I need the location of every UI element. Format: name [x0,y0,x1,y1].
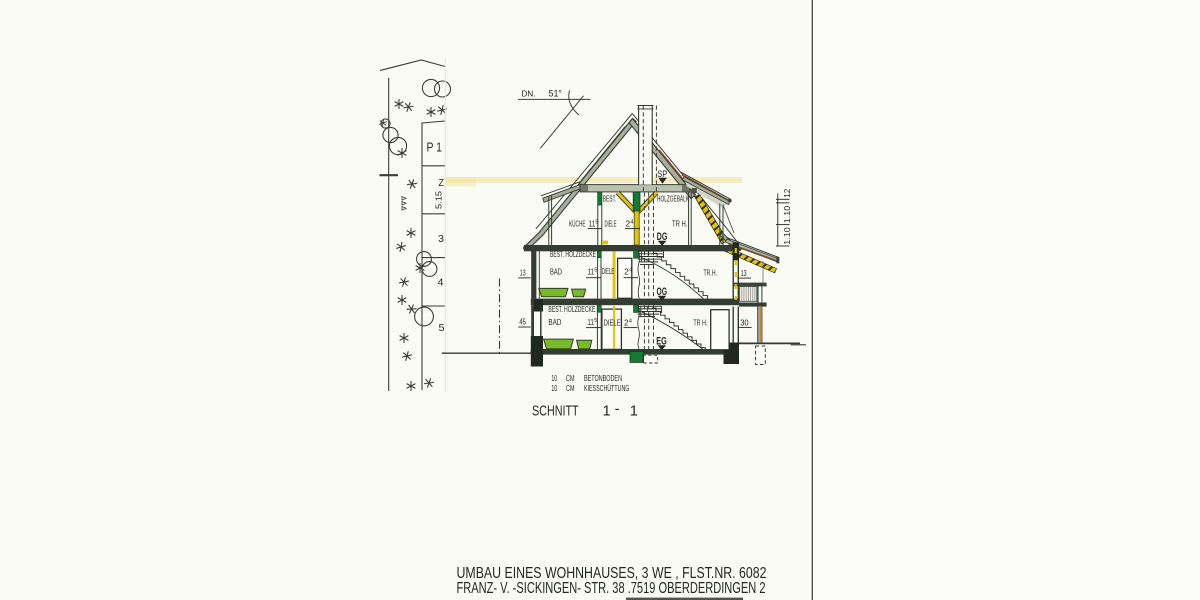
svg-text:30: 30 [740,318,749,328]
svg-text:45: 45 [519,317,526,327]
svg-text:FRANZ- V. -SICKINGEN- STR. 38: FRANZ- V. -SICKINGEN- STR. 38 .7519 OBER… [457,580,766,597]
svg-text:CM: CM [566,374,575,383]
svg-text:SCHNITT: SCHNITT [532,403,579,419]
svg-text:12: 12 [783,188,792,198]
svg-text:CM: CM [566,384,575,393]
svg-text:BEST.: BEST. [603,194,617,203]
svg-text:1: 1 [603,403,611,419]
svg-text:1: 1 [630,403,638,419]
svg-text:5: 5 [595,220,598,226]
svg-text:P 1: P 1 [427,141,443,155]
svg-text:51°: 51° [549,88,563,98]
svg-text:BEST. HOLZDECKE: BEST. HOLZDECKE [550,250,596,259]
svg-text:5: 5 [594,267,597,273]
svg-text:1.10: 1.10 [783,227,792,245]
svg-text:DN.: DN. [522,88,536,98]
svg-text:BAD: BAD [550,266,562,276]
svg-text:TR.H.: TR.H. [704,267,718,277]
svg-text:BEST. HOLZDECKE: BEST. HOLZDECKE [548,305,595,314]
svg-text:-: - [615,401,620,417]
svg-text:KÜCHE: KÜCHE [569,220,586,229]
svg-text:13: 13 [520,268,526,278]
svg-text:13: 13 [741,268,747,278]
svg-text:4: 4 [438,277,444,289]
svg-text:TR H.: TR H. [672,220,688,229]
svg-text:BAD: BAD [548,317,561,327]
svg-text:1.10: 1.10 [783,205,792,223]
svg-text:DIELE: DIELE [605,220,617,229]
svg-text:3: 3 [438,233,444,245]
svg-text:Z: Z [439,177,445,189]
svg-text:5.15: 5.15 [434,190,443,209]
svg-text:5: 5 [439,322,445,334]
svg-text:KIESSCHÜTTUNG: KIESSCHÜTTUNG [584,384,629,393]
svg-text:HOLZGEBÄLK: HOLZGEBÄLK [657,194,689,203]
svg-text:BETONBODEN: BETONBODEN [584,374,622,383]
svg-text:5: 5 [594,318,597,324]
svg-text:10: 10 [551,384,557,393]
svg-text:10: 10 [551,374,557,383]
svg-text:DIELE: DIELE [602,267,615,276]
svg-text:TR H.: TR H. [693,318,707,328]
svg-text:DIELE: DIELE [604,319,621,328]
